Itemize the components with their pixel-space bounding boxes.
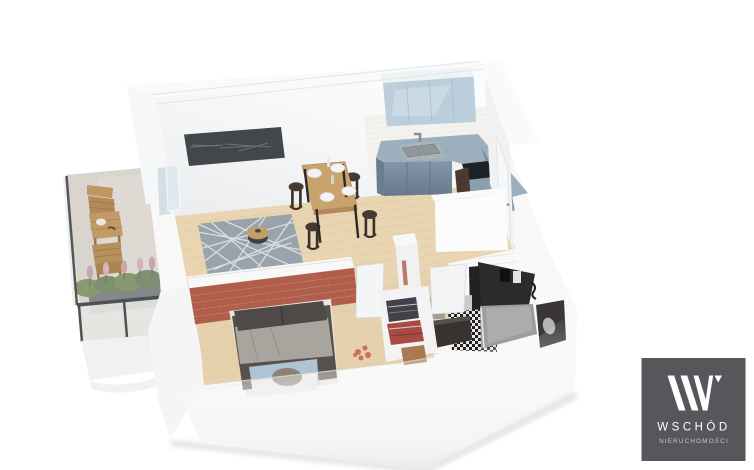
svg-text:WSCHÓD: WSCHÓD — [657, 421, 730, 434]
svg-text:NIERUCHOMOŚCI: NIERUCHOMOŚCI — [659, 436, 729, 445]
